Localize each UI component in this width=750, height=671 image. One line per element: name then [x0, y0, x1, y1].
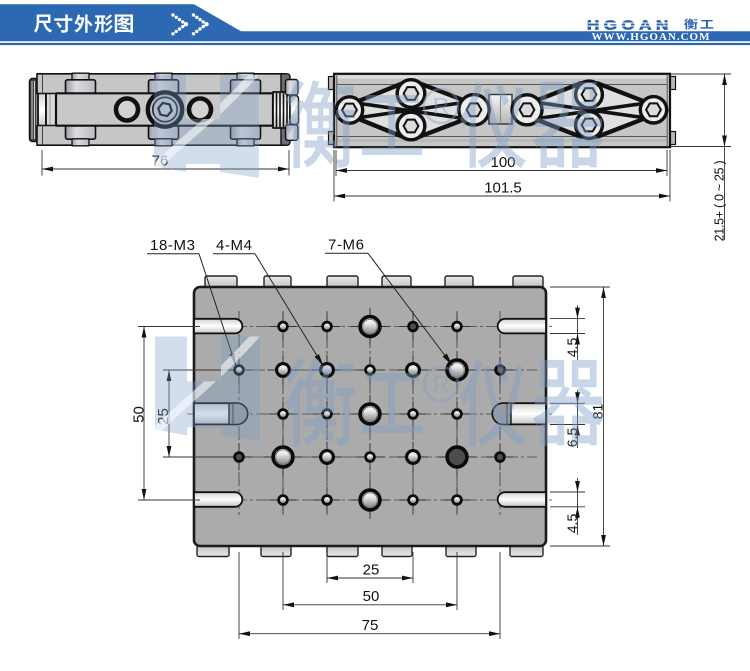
svg-text:75: 75	[362, 617, 379, 634]
svg-text:R: R	[433, 93, 450, 119]
svg-text:25: 25	[363, 562, 380, 579]
svg-text:50: 50	[363, 588, 380, 605]
svg-text:WWW.HGOAN.COM: WWW.HGOAN.COM	[592, 31, 711, 43]
svg-text:4.5: 4.5	[564, 514, 580, 534]
svg-text:18-M3: 18-M3	[150, 237, 196, 254]
svg-text:4-M4: 4-M4	[216, 237, 253, 254]
svg-text:50: 50	[131, 406, 148, 423]
svg-text:4.5: 4.5	[564, 338, 580, 358]
svg-text:101.5: 101.5	[484, 180, 522, 197]
svg-text:R: R	[433, 371, 450, 397]
svg-text:7-M6: 7-M6	[328, 237, 365, 254]
svg-text:21.5+ ( 0 ~ 25 ): 21.5+ ( 0 ~ 25 )	[713, 161, 727, 242]
